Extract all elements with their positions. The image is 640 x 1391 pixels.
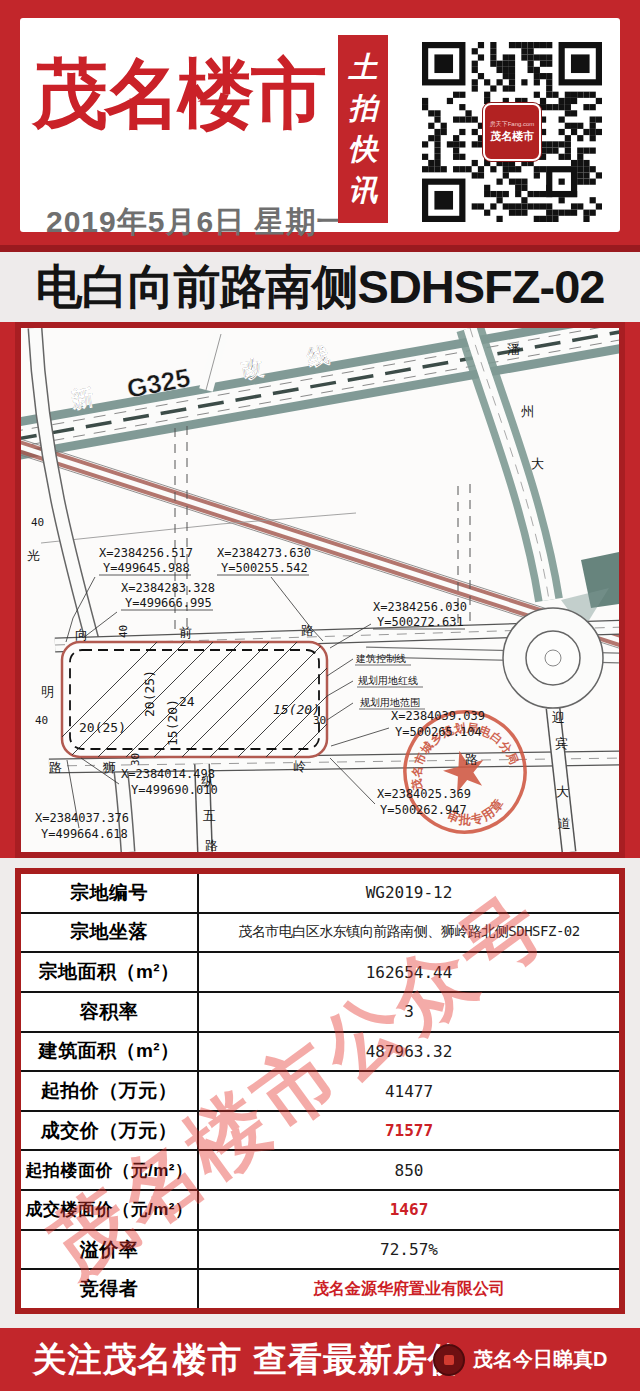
svg-text:X=2384256.030: X=2384256.030: [373, 600, 467, 614]
banner-char: 快: [349, 135, 378, 164]
svg-text:改: 改: [239, 354, 265, 383]
svg-text:建筑控制线: 建筑控制线: [355, 653, 406, 664]
poster-page: 茂名楼市 2019年5月6日 星期一 土 拍 快 讯 房天下Fang.com 茂…: [0, 0, 640, 1391]
svg-text:道: 道: [558, 816, 571, 831]
svg-text:大: 大: [556, 784, 569, 799]
table-row: 容积率3: [21, 991, 619, 1031]
deal-price: 71577: [199, 1112, 619, 1150]
svg-text:Y=500262.947: Y=500262.947: [380, 803, 467, 817]
deal-floor-price: 1467: [199, 1191, 619, 1229]
table-row: 溢价率72.57%: [21, 1229, 619, 1269]
svg-text:狮: 狮: [102, 760, 116, 775]
svg-text:明: 明: [41, 684, 54, 699]
table-row: 宗地面积（m²）162654.44: [21, 951, 619, 991]
planning-map: 茂名市城乡规划局电白分局 审批专用章 新 G325 改 线 向 前 路 狮 岭 …: [15, 322, 625, 858]
banner-char: 讯: [349, 176, 378, 205]
svg-text:20(25): 20(25): [142, 670, 157, 717]
qr-logo-line1: 房天下Fang.com: [490, 120, 535, 128]
table-row: 宗地坐落茂名市电白区水东镇向前路南侧、狮岭路北侧SDHSFZ-02: [21, 912, 619, 952]
svg-text:大: 大: [531, 456, 544, 471]
plot-ratio: 3: [199, 993, 619, 1031]
svg-text:X=2384014.498: X=2384014.498: [121, 767, 215, 781]
svg-text:光: 光: [27, 548, 40, 563]
svg-text:路: 路: [301, 623, 314, 638]
table-row: 起拍价（万元）41477: [21, 1070, 619, 1110]
svg-text:X=2384037.376: X=2384037.376: [35, 811, 129, 825]
footer-account-name: 茂名今日睇真D: [473, 1346, 607, 1373]
svg-text:24: 24: [179, 694, 195, 709]
svg-text:X=2384273.630: X=2384273.630: [217, 546, 311, 560]
headline-band: 电白向前路南侧SDHSFZ-02: [0, 252, 640, 322]
svg-text:Y=500265.104: Y=500265.104: [395, 725, 482, 739]
svg-text:规划用地范围: 规划用地范围: [360, 697, 420, 708]
table-row: 建筑面积（m²）487963.32: [21, 1031, 619, 1071]
footer-logo-icon: [433, 1344, 465, 1376]
svg-text:X=2384256.517: X=2384256.517: [99, 546, 193, 560]
parcel-number: WG2019-12: [199, 874, 619, 912]
qr-center-logo: 房天下Fang.com 茂名楼市: [483, 103, 541, 161]
svg-text:潘: 潘: [507, 342, 521, 357]
svg-text:Y=499645.988: Y=499645.988: [103, 561, 190, 575]
divider-strip: [0, 245, 640, 252]
footer-slogan: 关注茂名楼市 查看最新房价: [33, 1337, 463, 1383]
banner-char: 拍: [349, 94, 378, 123]
svg-text:路: 路: [465, 752, 478, 767]
svg-text:路: 路: [205, 838, 218, 852]
header-date: 2019年5月6日 星期一: [46, 202, 347, 243]
building-area: 487963.32: [199, 1033, 619, 1071]
planning-map-svg: 茂名市城乡规划局电白分局 审批专用章 新 G325 改 线 向 前 路 狮 岭 …: [21, 328, 619, 852]
land-info-table: 宗地编号WG2019-12 宗地坐落茂名市电白区水东镇向前路南侧、狮岭路北侧SD…: [15, 868, 625, 1314]
table-row: 竞得者茂名金源华府置业有限公司: [21, 1268, 619, 1308]
svg-text:Y=499690.010: Y=499690.010: [131, 783, 218, 797]
brand-title: 茂名楼市: [32, 56, 352, 132]
svg-text:前: 前: [179, 625, 192, 640]
parcel-area: 162654.44: [199, 953, 619, 991]
table-row: 成交楼面价（元/m²）1467: [21, 1189, 619, 1229]
qr-logo-line2: 茂名楼市: [490, 129, 534, 144]
svg-text:向: 向: [75, 627, 88, 642]
land-auction-banner: 土 拍 快 讯: [338, 35, 388, 223]
svg-text:20(25): 20(25): [79, 720, 126, 735]
parcel-location: 茂名市电白区水东镇向前路南侧、狮岭路北侧SDHSFZ-02: [199, 914, 619, 952]
svg-text:新: 新: [68, 384, 95, 413]
svg-text:路: 路: [49, 760, 62, 775]
qr-code: 房天下Fang.com 茂名楼市: [418, 38, 606, 226]
svg-text:40: 40: [117, 625, 130, 638]
headline-text: 电白向前路南侧SDHSFZ-02: [36, 256, 605, 319]
svg-text:X=2384283.328: X=2384283.328: [121, 581, 215, 595]
svg-text:15(20): 15(20): [273, 702, 320, 717]
svg-text:40: 40: [35, 714, 48, 727]
svg-text:州: 州: [521, 404, 534, 419]
table-row: 起拍楼面价（元/m²）850: [21, 1149, 619, 1189]
svg-text:X=2384039.039: X=2384039.039: [391, 709, 485, 723]
banner-char: 土: [349, 53, 378, 82]
svg-text:Y=500255.542: Y=500255.542: [221, 561, 308, 575]
svg-text:15(20): 15(20): [165, 699, 180, 746]
starting-price: 41477: [199, 1072, 619, 1110]
svg-text:Y=499666.995: Y=499666.995: [125, 596, 212, 610]
svg-text:Y=499664.618: Y=499664.618: [41, 827, 128, 841]
table-row: 宗地编号WG2019-12: [21, 874, 619, 912]
svg-text:30: 30: [129, 753, 142, 766]
svg-text:迎: 迎: [552, 710, 565, 725]
svg-text:X=2384025.369: X=2384025.369: [377, 787, 471, 801]
svg-text:规划用地红线: 规划用地红线: [358, 675, 418, 686]
table-row: 成交价（万元）71577: [21, 1110, 619, 1150]
premium-rate: 72.57%: [199, 1231, 619, 1269]
svg-text:40: 40: [31, 516, 44, 529]
svg-text:宾: 宾: [555, 736, 568, 751]
footer-bar: 关注茂名楼市 查看最新房价 茂名今日睇真D: [0, 1328, 640, 1391]
starting-floor-price: 850: [199, 1151, 619, 1189]
winner: 茂名金源华府置业有限公司: [199, 1270, 619, 1308]
svg-text:线: 线: [304, 342, 331, 371]
svg-text:五: 五: [203, 808, 216, 823]
header-card: 茂名楼市 2019年5月6日 星期一 土 拍 快 讯 房天下Fang.com 茂…: [20, 18, 620, 232]
svg-text:Y=500272.631: Y=500272.631: [377, 615, 464, 629]
svg-text:岭: 岭: [293, 759, 306, 774]
